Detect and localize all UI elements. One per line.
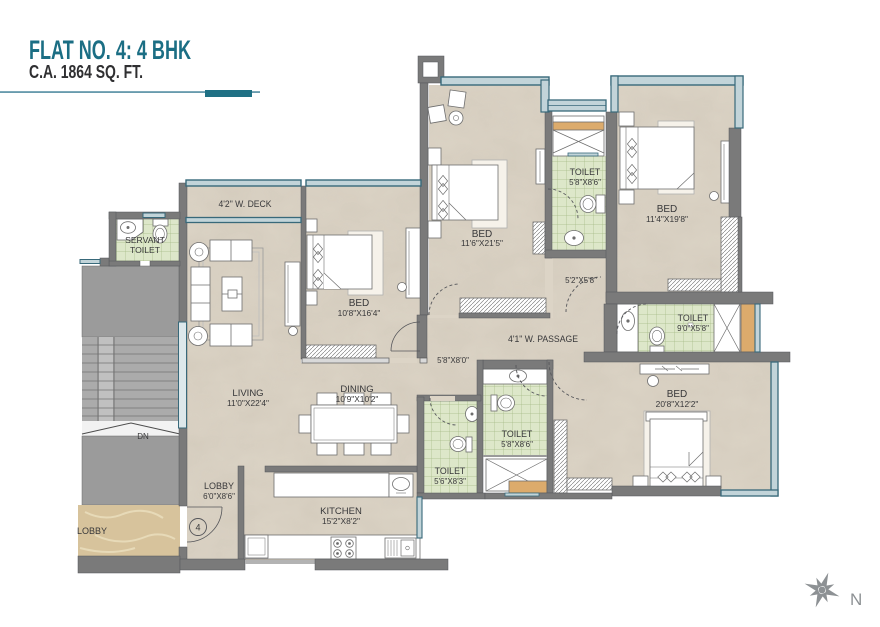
svg-text:11'4"X19'8": 11'4"X19'8" (646, 214, 688, 224)
svg-text:TOILET: TOILET (678, 313, 709, 323)
svg-text:5'2"X5'8": 5'2"X5'8" (565, 276, 597, 285)
svg-text:LOBBY: LOBBY (77, 526, 107, 536)
svg-text:5'6"X8'3": 5'6"X8'3" (434, 477, 466, 486)
svg-text:4'2" W. DECK: 4'2" W. DECK (219, 199, 273, 210)
svg-text:6'0"X8'6": 6'0"X8'6" (203, 492, 235, 501)
svg-text:SERVANT: SERVANT (125, 235, 166, 245)
svg-text:11'0"X22'4": 11'0"X22'4" (227, 398, 269, 408)
svg-text:10'9"X10'2": 10'9"X10'2" (336, 394, 379, 404)
svg-text:TOILET: TOILET (435, 466, 466, 476)
svg-text:DN: DN (137, 432, 149, 441)
svg-text:LOBBY: LOBBY (204, 481, 234, 491)
svg-text:FLAT NO. 4: 4 BHK: FLAT NO. 4: 4 BHK (29, 35, 191, 65)
svg-text:9'0"X5'8": 9'0"X5'8" (677, 324, 709, 333)
svg-text:15'2"X8'2": 15'2"X8'2" (322, 516, 360, 526)
svg-text:4: 4 (195, 523, 200, 533)
svg-text:5'8"X8'6": 5'8"X8'6" (501, 440, 533, 449)
svg-text:TOILET: TOILET (130, 245, 161, 255)
svg-text:20'8"X12'2": 20'8"X12'2" (656, 399, 699, 409)
svg-text:N: N (850, 590, 862, 609)
svg-text:5'8"X8'0": 5'8"X8'0" (437, 356, 469, 365)
svg-text:11'6"X21'5": 11'6"X21'5" (461, 238, 503, 248)
svg-text:5'8"X8'6": 5'8"X8'6" (569, 178, 601, 187)
svg-text:C.A. 1864 SQ. FT.: C.A. 1864 SQ. FT. (29, 62, 143, 82)
svg-text:4'1" W. PASSAGE: 4'1" W. PASSAGE (508, 334, 578, 345)
svg-text:TOILET: TOILET (502, 429, 533, 439)
svg-text:TOILET: TOILET (570, 167, 601, 177)
svg-text:10'8"X16'4": 10'8"X16'4" (338, 308, 381, 318)
